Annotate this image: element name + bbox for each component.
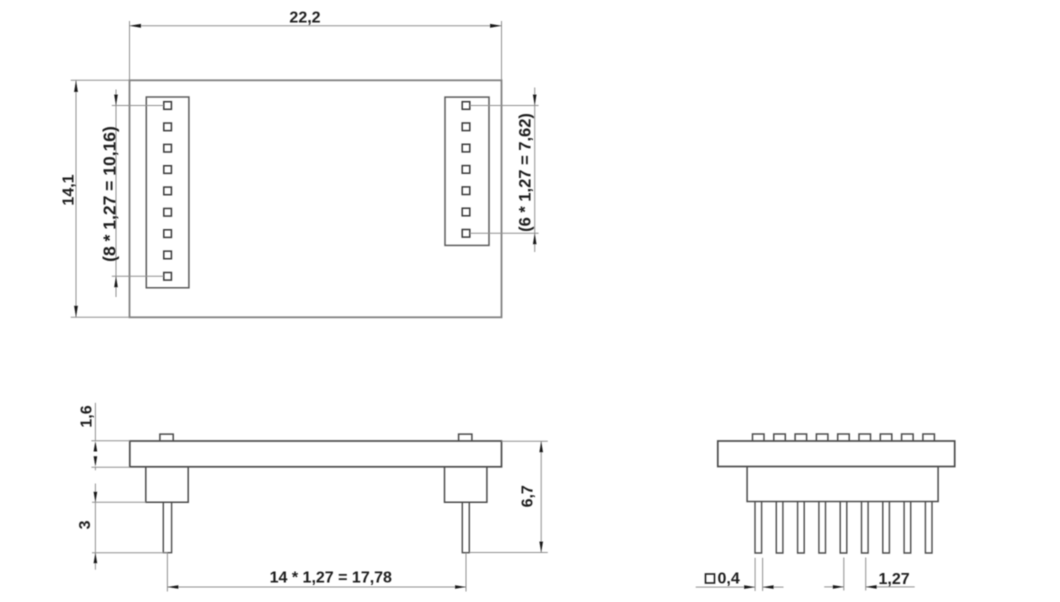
- svg-text:0,4: 0,4: [718, 571, 740, 588]
- svg-text:1,27: 1,27: [879, 571, 910, 588]
- svg-text:14 * 1,27 = 17,78: 14 * 1,27 = 17,78: [270, 570, 392, 587]
- svg-text:(6 * 1,27 = 7,62): (6 * 1,27 = 7,62): [517, 113, 535, 232]
- svg-text:1,6: 1,6: [79, 405, 96, 427]
- svg-text:(8 * 1,27 = 10,16): (8 * 1,27 = 10,16): [99, 126, 119, 262]
- svg-text:22,2: 22,2: [289, 9, 320, 26]
- svg-text:6,7: 6,7: [520, 485, 537, 507]
- svg-text:14,1: 14,1: [61, 174, 78, 205]
- svg-text:3: 3: [77, 520, 94, 529]
